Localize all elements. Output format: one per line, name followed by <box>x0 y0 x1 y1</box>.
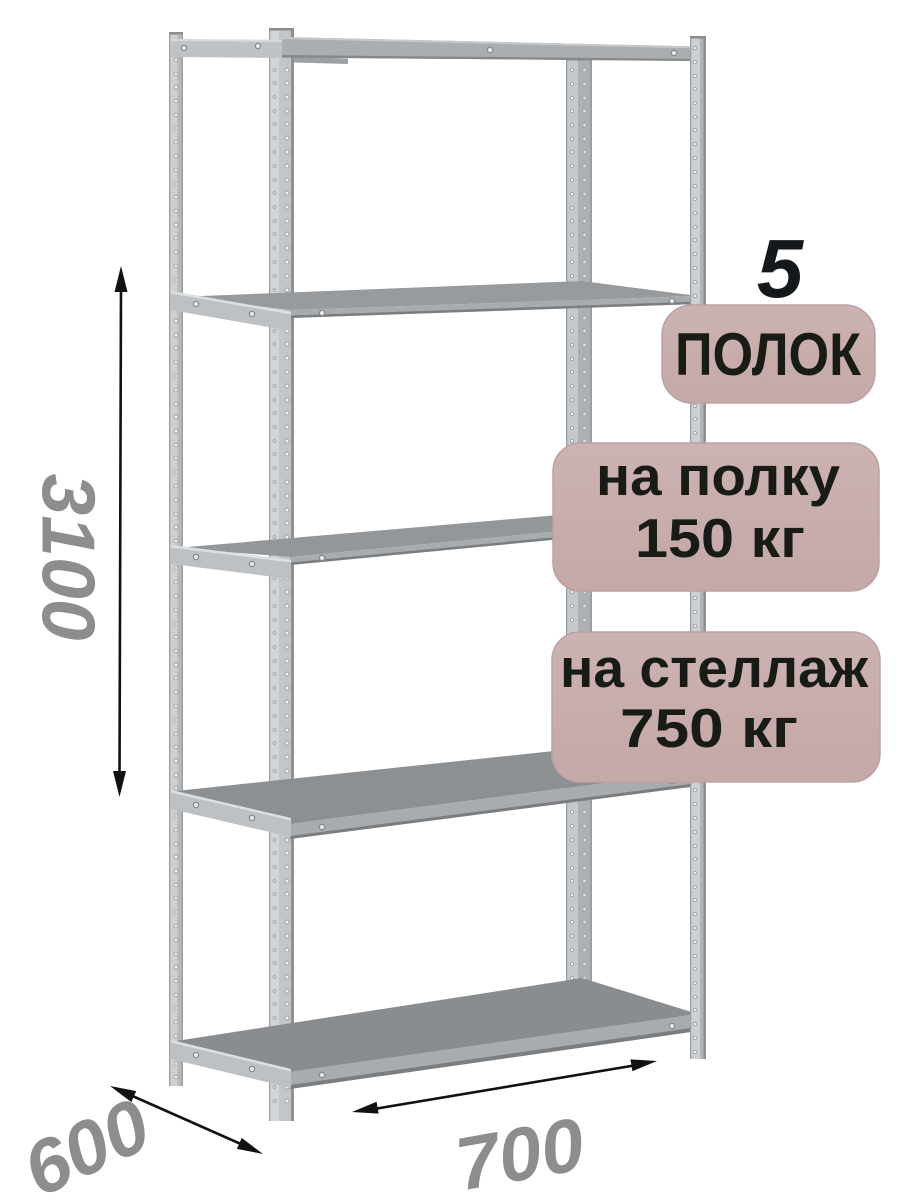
svg-text:150 кг: 150 кг <box>635 507 805 569</box>
svg-text:на стеллаж: на стеллаж <box>560 637 869 699</box>
svg-text:5: 5 <box>757 222 805 315</box>
svg-text:3100: 3100 <box>27 474 111 641</box>
svg-text:750 кг: 750 кг <box>620 697 798 759</box>
svg-text:ПОЛОК: ПОЛОК <box>675 321 861 388</box>
svg-text:на полку: на полку <box>596 445 840 507</box>
